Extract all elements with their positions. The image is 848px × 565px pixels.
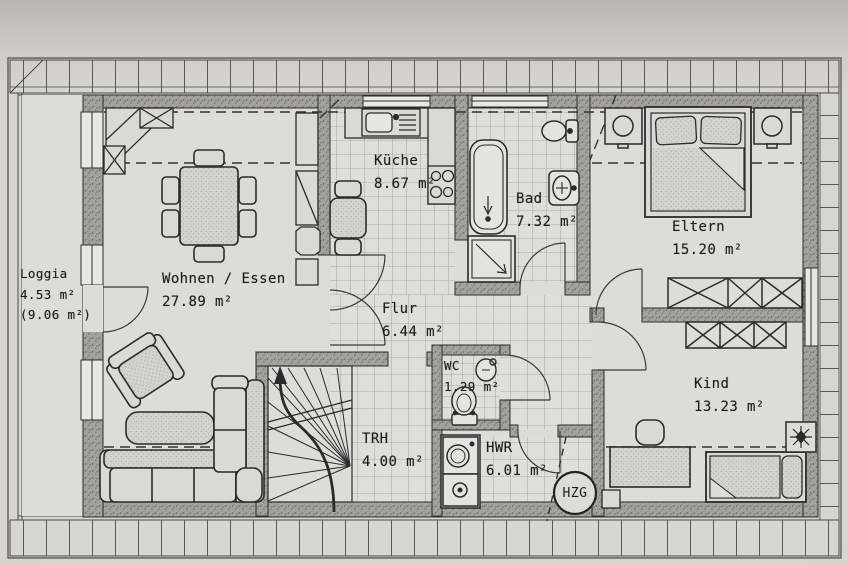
room-name: Küche: [374, 154, 436, 168]
room-area: 8.67 m²: [374, 177, 436, 191]
room-area: 15.20 m²: [672, 243, 743, 257]
room-label-loggia: Loggia 4.53 m² (9.06 m²): [20, 268, 91, 322]
room-area: 4.53 m²: [20, 289, 91, 302]
room-name: WC: [444, 360, 499, 373]
room-area: 7.32 m²: [516, 215, 578, 229]
room-name: Kind: [694, 377, 765, 391]
room-name: Flur: [382, 302, 444, 316]
room-area: 13.23 m²: [694, 400, 765, 414]
room-name: TRH: [362, 432, 424, 446]
room-name: Eltern: [672, 220, 743, 234]
room-name: Bad: [516, 192, 578, 206]
room-area: 6.01 m²: [486, 464, 548, 478]
room-label-flur: Flur 6.44 m²: [382, 302, 444, 339]
room-label-trh: TRH 4.00 m²: [362, 432, 424, 469]
room-labels: Loggia 4.53 m² (9.06 m²) Wohnen / Essen …: [0, 0, 848, 565]
room-label-wc: WC 1.29 m²: [444, 360, 499, 393]
room-label-wohnen-essen: Wohnen / Essen 27.89 m²: [162, 272, 286, 309]
room-name: Wohnen / Essen: [162, 272, 286, 286]
room-area: 1.29 m²: [444, 381, 499, 394]
room-area: 4.00 m²: [362, 455, 424, 469]
room-name: HWR: [486, 441, 548, 455]
room-area: 6.44 m²: [382, 325, 444, 339]
room-label-eltern: Eltern 15.20 m²: [672, 220, 743, 257]
room-label-hwr: HWR 6.01 m²: [486, 441, 548, 478]
room-area: 27.89 m²: [162, 295, 286, 309]
floorplan-scan: Loggia 4.53 m² (9.06 m²) Wohnen / Essen …: [0, 0, 848, 565]
heating-label: HZG: [554, 486, 596, 501]
room-label-bad: Bad 7.32 m²: [516, 192, 578, 229]
room-name: Loggia: [20, 268, 91, 281]
room-label-kind: Kind 13.23 m²: [694, 377, 765, 414]
room-area-alt: (9.06 m²): [20, 309, 91, 322]
room-label-kueche: Küche 8.67 m²: [374, 154, 436, 191]
